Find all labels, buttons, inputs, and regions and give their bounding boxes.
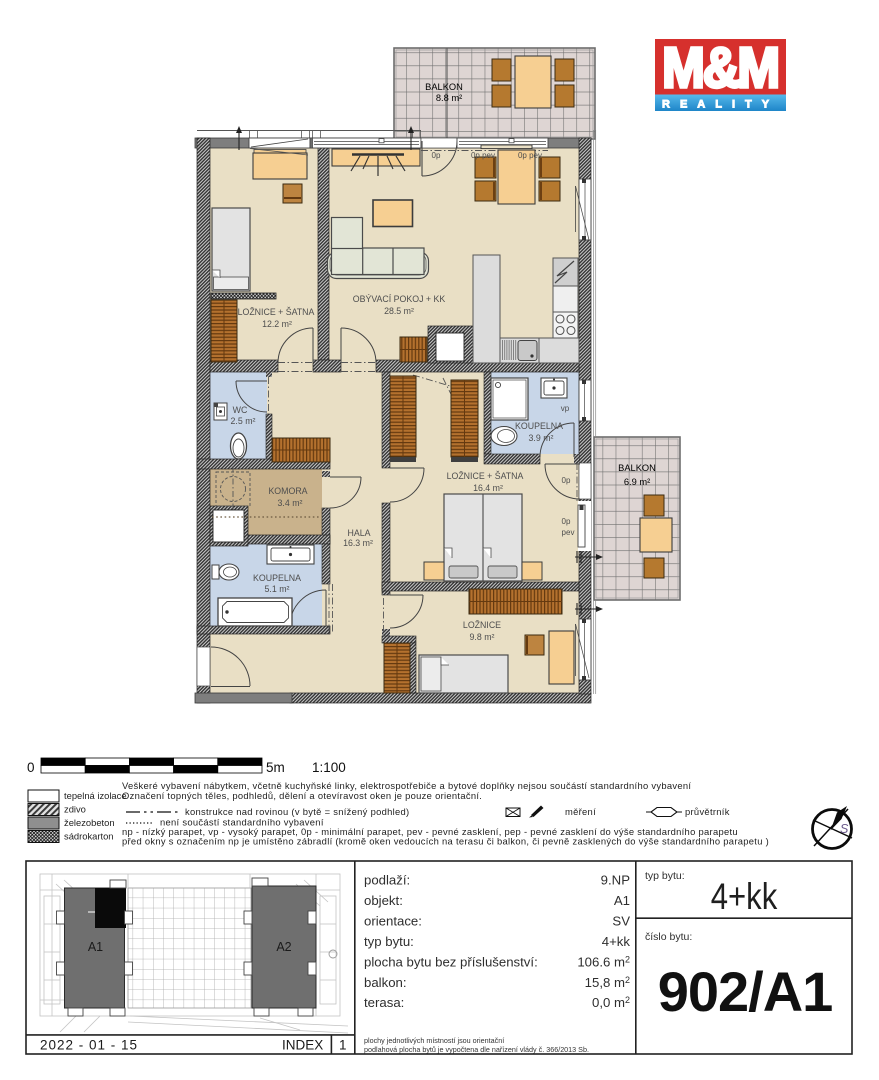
svg-text:1:100: 1:100 bbox=[312, 760, 346, 775]
svg-text:WC: WC bbox=[233, 405, 248, 415]
svg-text:902/A1: 902/A1 bbox=[658, 960, 833, 1023]
svg-text:0p pev: 0p pev bbox=[518, 151, 542, 160]
svg-text:0p: 0p bbox=[432, 151, 441, 160]
svg-text:A1: A1 bbox=[614, 893, 630, 908]
svg-text:28.5 m²: 28.5 m² bbox=[384, 306, 414, 316]
svg-text:konstrukce nad rovinou (v bytě: konstrukce nad rovinou (v bytě = snížený… bbox=[185, 806, 409, 817]
svg-text:LOŽNICE + ŠATNA: LOŽNICE + ŠATNA bbox=[238, 307, 315, 317]
svg-text:3.4 m²: 3.4 m² bbox=[278, 498, 303, 508]
svg-text:M&M: M&M bbox=[662, 37, 778, 100]
svg-text:před okny s označením np je um: před okny s označením np je umístěno záb… bbox=[122, 836, 769, 847]
svg-text:plochy jednotlivých místností: plochy jednotlivých místností jsou orien… bbox=[364, 1036, 504, 1045]
svg-text:typ bytu:: typ bytu: bbox=[645, 870, 685, 882]
svg-text:KOMORA: KOMORA bbox=[268, 486, 307, 496]
svg-text:2022 - 01 - 15: 2022 - 01 - 15 bbox=[40, 1038, 138, 1053]
svg-text:podlaží:: podlaží: bbox=[364, 873, 410, 888]
svg-text:5m: 5m bbox=[266, 760, 285, 775]
svg-text:3.9 m²: 3.9 m² bbox=[529, 433, 554, 443]
svg-text:Označení topných těles, podhle: Označení topných těles, podhledů, dělení… bbox=[122, 790, 482, 801]
svg-text:měření: měření bbox=[565, 806, 596, 817]
svg-text:číslo bytu:: číslo bytu: bbox=[645, 931, 692, 943]
svg-text:A1: A1 bbox=[88, 940, 103, 954]
svg-text:železobeton: železobeton bbox=[64, 817, 115, 828]
svg-text:tepelná izolace: tepelná izolace bbox=[64, 790, 127, 801]
svg-text:pev: pev bbox=[562, 528, 575, 537]
svg-text:6.9 m²: 6.9 m² bbox=[624, 477, 650, 487]
svg-text:sádrokarton: sádrokarton bbox=[64, 831, 114, 842]
svg-text:BALKON: BALKON bbox=[618, 463, 656, 473]
svg-text:S: S bbox=[840, 822, 849, 836]
svg-text:0p: 0p bbox=[562, 476, 571, 485]
svg-text:plocha bytu bez příslušenství:: plocha bytu bez příslušenství: bbox=[364, 955, 538, 970]
svg-text:SV: SV bbox=[612, 914, 630, 929]
svg-text:OBÝVACÍ POKOJ + KK: OBÝVACÍ POKOJ + KK bbox=[353, 294, 446, 304]
svg-text:2.5 m²: 2.5 m² bbox=[231, 416, 256, 426]
svg-text:1: 1 bbox=[339, 1038, 347, 1053]
svg-text:LOŽNICE + ŠATNA: LOŽNICE + ŠATNA bbox=[447, 471, 524, 481]
svg-text:zdivo: zdivo bbox=[64, 804, 86, 815]
svg-text:16.3 m²: 16.3 m² bbox=[343, 538, 373, 548]
svg-text:terasa:: terasa: bbox=[364, 995, 404, 1010]
svg-text:vp: vp bbox=[561, 404, 570, 413]
svg-text:průvětrník: průvětrník bbox=[685, 806, 730, 817]
svg-text:0,0 m2: 0,0 m2 bbox=[592, 995, 630, 1010]
svg-text:9.NP: 9.NP bbox=[601, 873, 631, 888]
svg-text:106.6 m2: 106.6 m2 bbox=[577, 955, 630, 970]
svg-text:9.8 m²: 9.8 m² bbox=[470, 632, 495, 642]
svg-text:0p: 0p bbox=[562, 517, 571, 526]
svg-text:16.4 m²: 16.4 m² bbox=[473, 483, 503, 493]
svg-text:KOUPELNA: KOUPELNA bbox=[253, 573, 301, 583]
svg-text:0p pev: 0p pev bbox=[471, 151, 495, 160]
svg-text:4+kk: 4+kk bbox=[711, 877, 778, 918]
svg-text:0: 0 bbox=[27, 760, 35, 775]
svg-text:12.2 m²: 12.2 m² bbox=[262, 319, 292, 329]
svg-text:podlahová plocha bytů je vypoč: podlahová plocha bytů je vypočtena dle n… bbox=[364, 1045, 589, 1054]
svg-text:REALITY: REALITY bbox=[662, 99, 779, 111]
svg-text:LOŽNICE: LOŽNICE bbox=[463, 620, 501, 630]
svg-text:KOUPELNA: KOUPELNA bbox=[515, 421, 563, 431]
svg-text:4+kk: 4+kk bbox=[602, 934, 631, 949]
svg-text:15,8 m2: 15,8 m2 bbox=[585, 975, 630, 990]
svg-text:8.8 m²: 8.8 m² bbox=[436, 93, 462, 103]
svg-text:balkon:: balkon: bbox=[364, 975, 407, 990]
svg-text:orientace:: orientace: bbox=[364, 914, 422, 929]
svg-text:INDEX: INDEX bbox=[282, 1038, 323, 1053]
svg-text:HALA: HALA bbox=[348, 528, 371, 538]
svg-text:objekt:: objekt: bbox=[364, 893, 403, 908]
svg-text:BALKON: BALKON bbox=[425, 82, 463, 92]
svg-text:typ bytu:: typ bytu: bbox=[364, 934, 414, 949]
svg-text:5.1 m²: 5.1 m² bbox=[265, 584, 290, 594]
svg-text:A2: A2 bbox=[276, 940, 291, 954]
